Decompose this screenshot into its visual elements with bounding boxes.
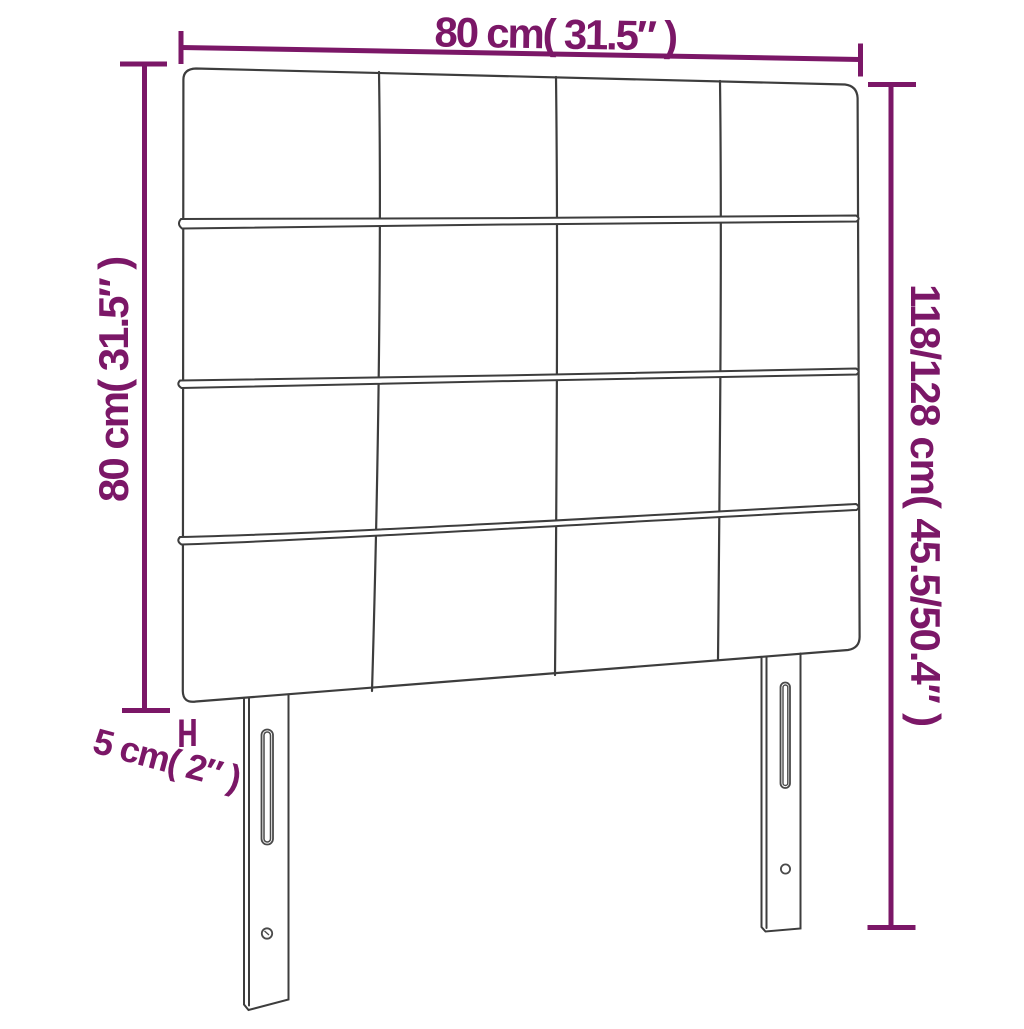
svg-text:118/128 cm( 45.5/50.4″ ): 118/128 cm( 45.5/50.4″ ) bbox=[902, 284, 949, 726]
svg-text:80 cm( 31.5″ ): 80 cm( 31.5″ ) bbox=[90, 258, 137, 502]
svg-text:80 cm( 31.5″ ): 80 cm( 31.5″ ) bbox=[434, 8, 676, 59]
